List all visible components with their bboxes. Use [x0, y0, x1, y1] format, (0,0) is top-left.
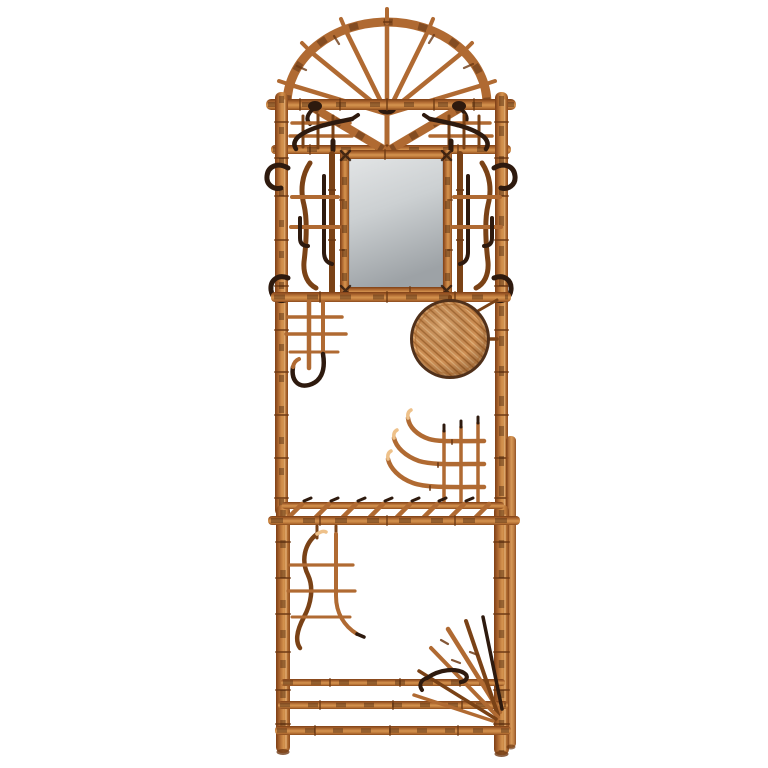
hall-stand-photo — [0, 0, 768, 768]
mirror — [340, 150, 452, 296]
mirror-glass — [349, 155, 443, 291]
mid-rail — [271, 292, 511, 302]
hall-stand-illustration — [0, 0, 768, 768]
